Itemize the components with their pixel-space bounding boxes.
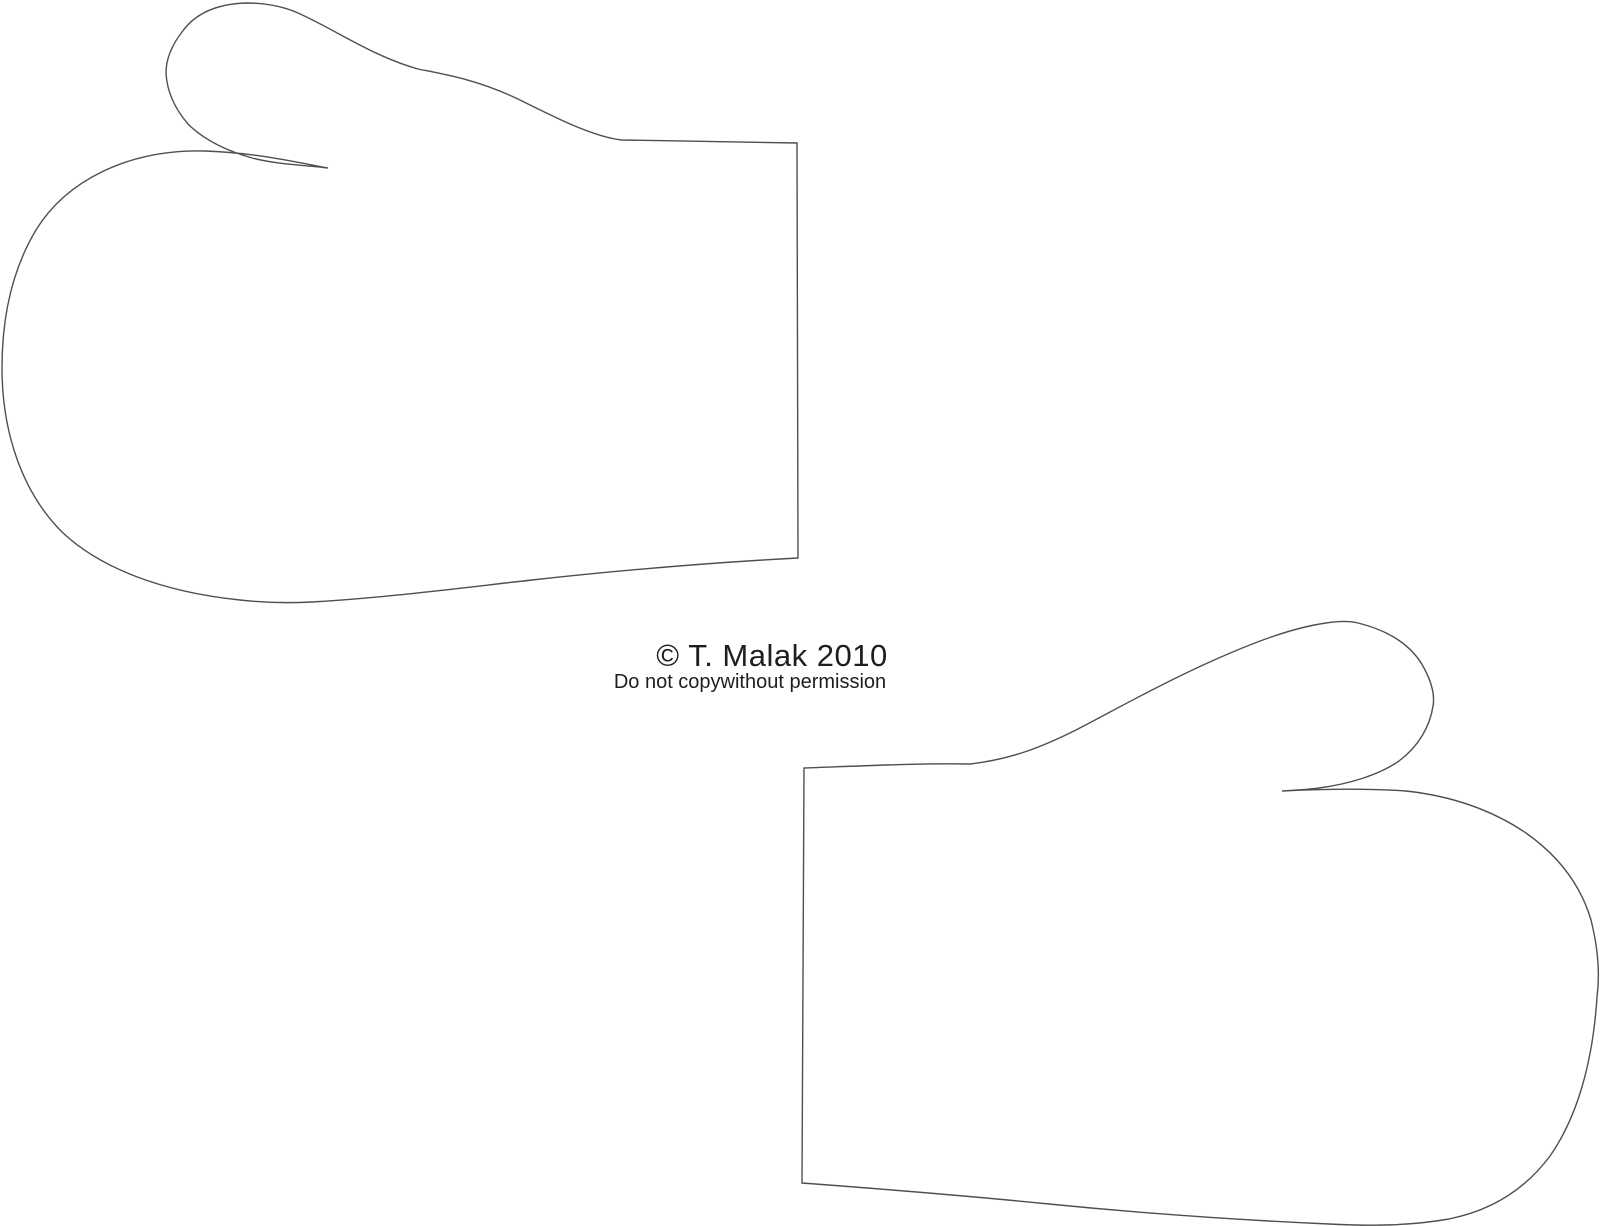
top-left-mitten-outline <box>2 3 798 603</box>
copyright-line: © T. Malak 2010 <box>656 640 887 671</box>
permission-line: Do not copywithout permission <box>614 672 886 692</box>
mitten-template-page: © T. Malak 2010 Do not copywithout permi… <box>0 0 1600 1226</box>
mitten-template-canvas <box>0 0 1600 1226</box>
bottom-right-mitten-outline <box>802 622 1598 1226</box>
